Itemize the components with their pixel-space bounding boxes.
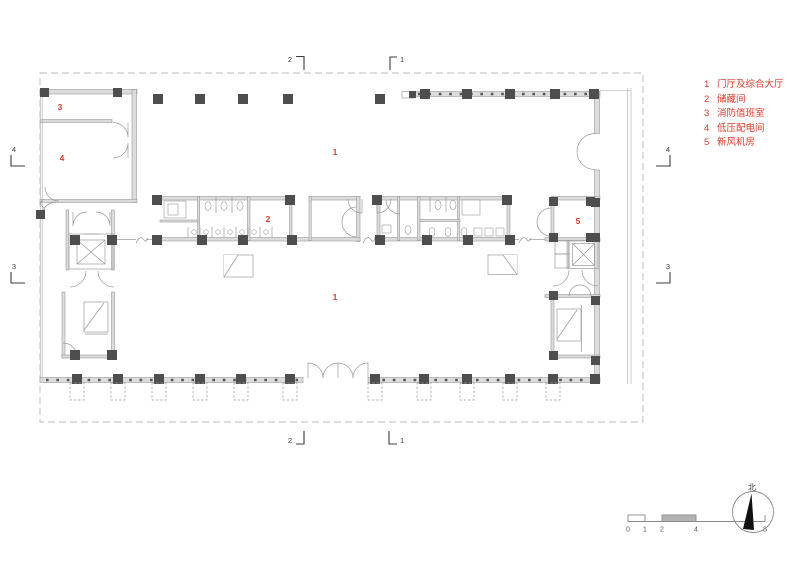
hall-stair-left xyxy=(224,255,253,277)
room-legend: 1 门厅及综合大厅 2 储藏间 3 消防值班室 4 低压配电间 5 新风机房 xyxy=(704,80,784,153)
legend-item-label: 新风机房 xyxy=(717,138,755,148)
scale-tick-1: 1 xyxy=(643,527,647,534)
legend-item-label: 门厅及综合大厅 xyxy=(717,80,784,90)
left-stair xyxy=(62,292,115,358)
section-marker-left-upper: 4 xyxy=(12,145,16,154)
scale-tick-4: 4 xyxy=(694,527,698,534)
room-label-fresh-air: 5 xyxy=(576,216,581,226)
room-label-hall-bottom: 1 xyxy=(333,292,338,302)
drawing-sheet: { "legend": { "items": [ {"num":"1","lab… xyxy=(0,0,800,565)
right-stair xyxy=(557,305,582,352)
structural-columns xyxy=(36,88,600,384)
legend-item-number: 1 xyxy=(704,80,717,90)
legend-item-number: 5 xyxy=(704,138,717,148)
north-needle xyxy=(743,494,754,531)
section-marker-top-right: 1 xyxy=(400,55,404,64)
section-marker-bottom-right: 1 xyxy=(400,436,404,445)
room-label-fire-duty: 3 xyxy=(58,102,63,112)
section-marker-bottom-left: 2 xyxy=(288,436,292,445)
legend-item: 3 消防值班室 xyxy=(704,109,784,119)
section-marker-right-upper: 4 xyxy=(666,145,670,154)
floor-plan-canvas: 1 2 1 3 4 5 2 1 2 1 4 3 4 3 0 1 2 4 xyxy=(0,0,800,565)
room-label-storage: 2 xyxy=(266,214,271,224)
toilet-fixtures xyxy=(164,197,504,237)
pilaster-footprints xyxy=(70,383,560,400)
section-markers: 2 1 2 1 4 3 4 3 xyxy=(11,55,670,445)
scale-tick-2: 2 xyxy=(660,527,664,534)
section-marker-left-lower: 3 xyxy=(12,262,16,271)
north-label: 北 xyxy=(748,483,756,492)
section-marker-top-left: 2 xyxy=(288,55,292,64)
door-arcs xyxy=(42,123,598,379)
building-walls xyxy=(40,90,600,384)
legend-item: 2 储藏间 xyxy=(704,95,784,105)
north-compass-icon: 北 xyxy=(733,483,774,533)
scale-tick-0: 0 xyxy=(626,527,630,534)
site-boundary xyxy=(40,73,643,422)
legend-item-label: 储藏间 xyxy=(717,95,746,105)
legend-item-number: 4 xyxy=(704,124,717,134)
room-label-power: 4 xyxy=(60,153,65,163)
legend-item-number: 2 xyxy=(704,95,717,105)
legend-item-number: 3 xyxy=(704,109,717,119)
legend-item-label: 低压配电间 xyxy=(717,124,765,134)
legend-item: 1 门厅及综合大厅 xyxy=(704,80,784,90)
section-marker-right-lower: 3 xyxy=(666,262,670,271)
legend-item: 5 新风机房 xyxy=(704,138,784,148)
legend-item-label: 消防值班室 xyxy=(717,109,765,119)
legend-item: 4 低压配电间 xyxy=(704,124,784,134)
hall-stair-right xyxy=(488,255,517,275)
right-elevator-core xyxy=(555,241,598,269)
room-label-hall-top: 1 xyxy=(333,147,338,157)
